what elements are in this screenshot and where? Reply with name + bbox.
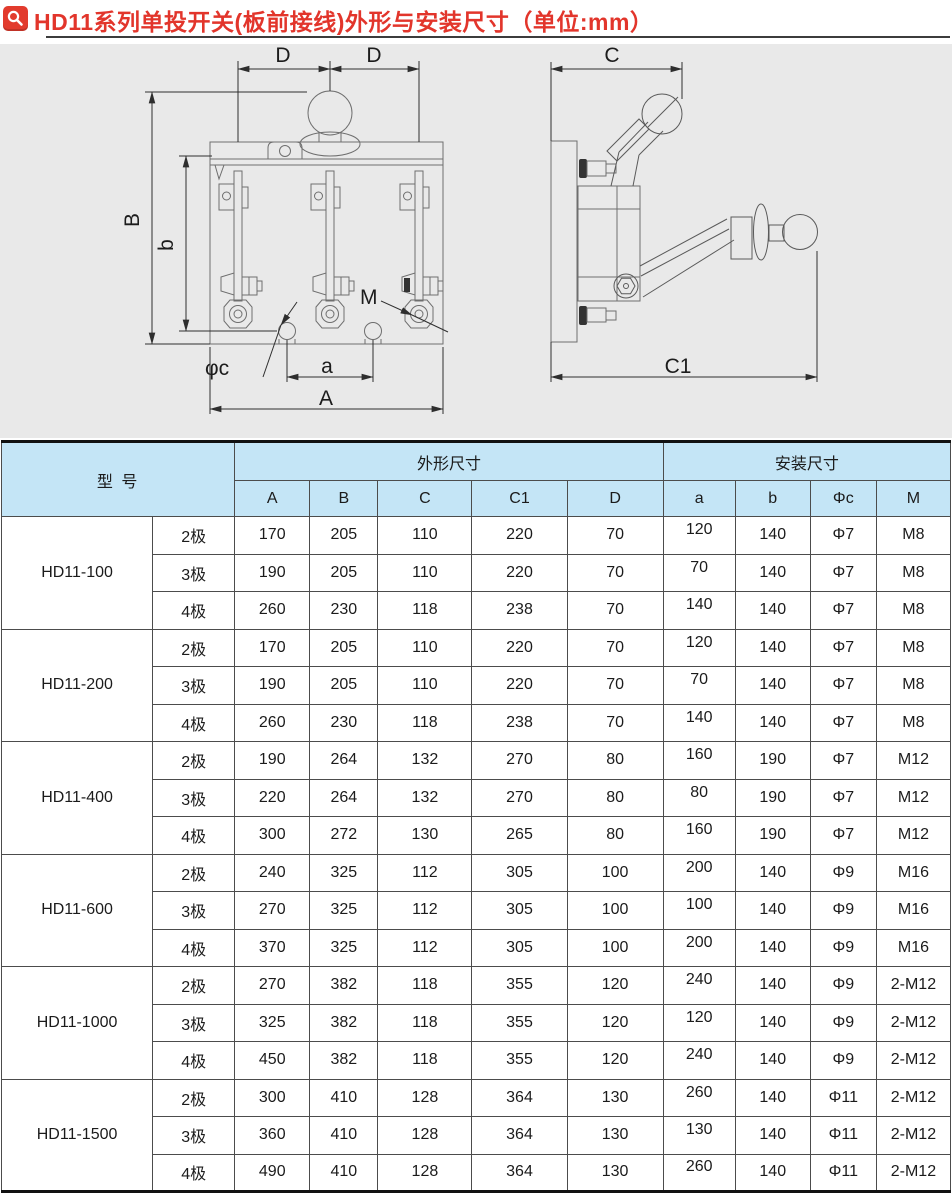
header-col-M: M xyxy=(876,481,950,517)
value-cell: 112 xyxy=(378,892,472,930)
table-row: HD11-1002极17020511022070120140Φ7M8 xyxy=(2,517,951,555)
value-cell: 70 xyxy=(663,667,735,705)
value-cell: 220 xyxy=(472,554,567,592)
value-cell: 170 xyxy=(235,517,310,555)
value-cell: Φ7 xyxy=(810,554,876,592)
value-cell: 120 xyxy=(663,517,735,555)
value-cell: Φ11 xyxy=(810,1117,876,1155)
header-shape-dims: 外形尺寸 xyxy=(235,442,663,481)
value-cell: 112 xyxy=(378,854,472,892)
value-cell: 70 xyxy=(567,592,663,630)
value-cell: 132 xyxy=(378,779,472,817)
value-cell: 200 xyxy=(663,854,735,892)
table-row: HD11-15002极300410128364130260140Φ112-M12 xyxy=(2,1079,951,1117)
pole-cell: 4极 xyxy=(153,1154,235,1192)
value-cell: 270 xyxy=(235,967,310,1005)
value-cell: 220 xyxy=(472,629,567,667)
value-cell: 140 xyxy=(735,704,810,742)
value-cell: Φ7 xyxy=(810,517,876,555)
value-cell: 410 xyxy=(310,1154,378,1192)
value-cell: Φ11 xyxy=(810,1079,876,1117)
value-cell: 270 xyxy=(472,742,567,780)
value-cell: 110 xyxy=(378,629,472,667)
header-col-a: a xyxy=(663,481,735,517)
value-cell: M12 xyxy=(876,779,950,817)
page-title: HD11系列单投开关(板前接线)外形与安装尺寸（单位:mm） xyxy=(34,3,653,37)
value-cell: 300 xyxy=(235,1079,310,1117)
pole-cell: 4极 xyxy=(153,592,235,630)
value-cell: M8 xyxy=(876,704,950,742)
spec-table-body: HD11-1002极17020511022070120140Φ7M83极1902… xyxy=(2,517,951,1192)
value-cell: M16 xyxy=(876,892,950,930)
value-cell: 140 xyxy=(735,1042,810,1080)
value-cell: 220 xyxy=(472,517,567,555)
value-cell: M12 xyxy=(876,817,950,855)
value-cell: 325 xyxy=(310,892,378,930)
value-cell: 120 xyxy=(663,629,735,667)
value-cell: 140 xyxy=(735,1079,810,1117)
value-cell: 140 xyxy=(735,517,810,555)
value-cell: 205 xyxy=(310,517,378,555)
value-cell: 120 xyxy=(567,1042,663,1080)
value-cell: 110 xyxy=(378,517,472,555)
value-cell: 140 xyxy=(735,1117,810,1155)
table-row: HD11-2002极17020511022070120140Φ7M8 xyxy=(2,629,951,667)
pole-cell: 2极 xyxy=(153,742,235,780)
value-cell: 450 xyxy=(235,1042,310,1080)
value-cell: 170 xyxy=(235,629,310,667)
dim-label-D-left: D xyxy=(275,44,290,67)
value-cell: 160 xyxy=(663,742,735,780)
header-col-C: C xyxy=(378,481,472,517)
value-cell: 360 xyxy=(235,1117,310,1155)
value-cell: 100 xyxy=(567,929,663,967)
value-cell: 70 xyxy=(567,554,663,592)
value-cell: 128 xyxy=(378,1079,472,1117)
value-cell: 205 xyxy=(310,629,378,667)
value-cell: 355 xyxy=(472,1042,567,1080)
value-cell: Φ7 xyxy=(810,629,876,667)
value-cell: 2-M12 xyxy=(876,967,950,1005)
pole-cell: 3极 xyxy=(153,1117,235,1155)
model-cell: HD11-1000 xyxy=(2,967,153,1080)
dim-label-A: A xyxy=(319,387,333,410)
value-cell: 260 xyxy=(663,1154,735,1192)
value-cell: 410 xyxy=(310,1117,378,1155)
value-cell: 80 xyxy=(567,779,663,817)
value-cell: 140 xyxy=(735,629,810,667)
value-cell: 100 xyxy=(567,854,663,892)
model-cell: HD11-400 xyxy=(2,742,153,855)
value-cell: M8 xyxy=(876,517,950,555)
value-cell: 70 xyxy=(567,629,663,667)
value-cell: Φ7 xyxy=(810,667,876,705)
spec-table: 型 号 外形尺寸 安装尺寸 A B C C1 D a b Φc M HD11-1… xyxy=(1,440,951,1193)
value-cell: 130 xyxy=(567,1117,663,1155)
pole-cell: 3极 xyxy=(153,1004,235,1042)
value-cell: 382 xyxy=(310,1004,378,1042)
value-cell: 205 xyxy=(310,667,378,705)
value-cell: Φ9 xyxy=(810,1004,876,1042)
value-cell: 70 xyxy=(567,667,663,705)
header-col-D: D xyxy=(567,481,663,517)
value-cell: 230 xyxy=(310,592,378,630)
value-cell: 110 xyxy=(378,667,472,705)
value-cell: 140 xyxy=(735,929,810,967)
pole-cell: 2极 xyxy=(153,854,235,892)
value-cell: 140 xyxy=(735,667,810,705)
value-cell: 270 xyxy=(235,892,310,930)
value-cell: 120 xyxy=(663,1004,735,1042)
value-cell: 325 xyxy=(310,929,378,967)
value-cell: 305 xyxy=(472,854,567,892)
value-cell: 80 xyxy=(663,779,735,817)
catalog-page: HD11系列单投开关(板前接线)外形与安装尺寸（单位:mm） xyxy=(0,0,952,1194)
value-cell: 382 xyxy=(310,967,378,1005)
value-cell: 230 xyxy=(310,704,378,742)
dimension-drawings: D D B b M φc a A xyxy=(0,44,952,438)
value-cell: 118 xyxy=(378,967,472,1005)
value-cell: 140 xyxy=(735,854,810,892)
value-cell: 70 xyxy=(567,517,663,555)
title-underline xyxy=(46,36,950,38)
pole-cell: 3极 xyxy=(153,779,235,817)
value-cell: M8 xyxy=(876,629,950,667)
dim-label-C1: C1 xyxy=(665,355,692,378)
value-cell: M16 xyxy=(876,929,950,967)
value-cell: 265 xyxy=(472,817,567,855)
value-cell: 70 xyxy=(663,554,735,592)
value-cell: 128 xyxy=(378,1154,472,1192)
value-cell: 118 xyxy=(378,704,472,742)
header-model: 型 号 xyxy=(2,442,235,517)
value-cell: Φ11 xyxy=(810,1154,876,1192)
value-cell: 130 xyxy=(663,1117,735,1155)
value-cell: Φ9 xyxy=(810,892,876,930)
value-cell: 140 xyxy=(735,1004,810,1042)
header-col-b: b xyxy=(735,481,810,517)
model-cell: HD11-100 xyxy=(2,517,153,630)
value-cell: 260 xyxy=(235,704,310,742)
value-cell: 120 xyxy=(567,967,663,1005)
pole-cell: 3极 xyxy=(153,554,235,592)
value-cell: 118 xyxy=(378,1004,472,1042)
value-cell: 160 xyxy=(663,817,735,855)
value-cell: 190 xyxy=(235,742,310,780)
value-cell: 2-M12 xyxy=(876,1079,950,1117)
side-view-drawing: C C1 xyxy=(551,44,818,382)
value-cell: 264 xyxy=(310,742,378,780)
value-cell: 110 xyxy=(378,554,472,592)
value-cell: 130 xyxy=(567,1154,663,1192)
value-cell: Φ9 xyxy=(810,1042,876,1080)
value-cell: M8 xyxy=(876,554,950,592)
model-cell: HD11-1500 xyxy=(2,1079,153,1192)
pole-cell: 4极 xyxy=(153,929,235,967)
value-cell: Φ7 xyxy=(810,817,876,855)
value-cell: M8 xyxy=(876,592,950,630)
value-cell: 305 xyxy=(472,929,567,967)
value-cell: Φ9 xyxy=(810,854,876,892)
pole-cell: 2极 xyxy=(153,629,235,667)
value-cell: 272 xyxy=(310,817,378,855)
value-cell: 355 xyxy=(472,1004,567,1042)
value-cell: 140 xyxy=(735,967,810,1005)
mounting-hole xyxy=(365,323,382,340)
value-cell: 140 xyxy=(735,592,810,630)
value-cell: 80 xyxy=(567,742,663,780)
value-cell: 190 xyxy=(735,779,810,817)
value-cell: 190 xyxy=(235,667,310,705)
value-cell: 118 xyxy=(378,1042,472,1080)
value-cell: Φ7 xyxy=(810,704,876,742)
value-cell: 300 xyxy=(235,817,310,855)
pole-assembly xyxy=(219,171,443,328)
value-cell: 305 xyxy=(472,892,567,930)
value-cell: 260 xyxy=(235,592,310,630)
value-cell: 140 xyxy=(663,592,735,630)
pole-cell: 4极 xyxy=(153,1042,235,1080)
value-cell: 220 xyxy=(472,667,567,705)
value-cell: 70 xyxy=(567,704,663,742)
pole-cell: 3极 xyxy=(153,667,235,705)
value-cell: 130 xyxy=(378,817,472,855)
value-cell: 240 xyxy=(235,854,310,892)
title-bar: HD11系列单投开关(板前接线)外形与安装尺寸（单位:mm） xyxy=(0,0,952,44)
value-cell: M16 xyxy=(876,854,950,892)
header-col-phi-c: Φc xyxy=(810,481,876,517)
value-cell: 2-M12 xyxy=(876,1004,950,1042)
pole-cell: 3极 xyxy=(153,892,235,930)
value-cell: 240 xyxy=(663,1042,735,1080)
value-cell: 100 xyxy=(663,892,735,930)
value-cell: 118 xyxy=(378,592,472,630)
header-col-A: A xyxy=(235,481,310,517)
dim-label-a: a xyxy=(321,355,333,378)
header-col-C1: C1 xyxy=(472,481,567,517)
value-cell: 220 xyxy=(235,779,310,817)
pole-cell: 2极 xyxy=(153,1079,235,1117)
table-row: HD11-10002极270382118355120240140Φ92-M12 xyxy=(2,967,951,1005)
value-cell: 120 xyxy=(567,1004,663,1042)
value-cell: 128 xyxy=(378,1117,472,1155)
header-col-B: B xyxy=(310,481,378,517)
magnifier-icon xyxy=(3,6,28,31)
value-cell: 205 xyxy=(310,554,378,592)
value-cell: 364 xyxy=(472,1117,567,1155)
value-cell: 190 xyxy=(235,554,310,592)
value-cell: M8 xyxy=(876,667,950,705)
dim-label-D-right: D xyxy=(366,44,381,67)
value-cell: 240 xyxy=(663,967,735,1005)
value-cell: 140 xyxy=(663,704,735,742)
value-cell: Φ7 xyxy=(810,779,876,817)
value-cell: 382 xyxy=(310,1042,378,1080)
value-cell: Φ7 xyxy=(810,592,876,630)
pole-cell: 2极 xyxy=(153,517,235,555)
value-cell: 140 xyxy=(735,892,810,930)
front-view-drawing: D D B b M φc a A xyxy=(121,44,448,414)
value-cell: 364 xyxy=(472,1079,567,1117)
value-cell: 260 xyxy=(663,1079,735,1117)
value-cell: Φ9 xyxy=(810,929,876,967)
table-row: HD11-4002极19026413227080160190Φ7M12 xyxy=(2,742,951,780)
table-row: HD11-6002极240325112305100200140Φ9M16 xyxy=(2,854,951,892)
value-cell: 132 xyxy=(378,742,472,780)
value-cell: 112 xyxy=(378,929,472,967)
value-cell: 325 xyxy=(235,1004,310,1042)
value-cell: 355 xyxy=(472,967,567,1005)
model-cell: HD11-200 xyxy=(2,629,153,742)
value-cell: 2-M12 xyxy=(876,1117,950,1155)
dim-label-B: B xyxy=(121,213,144,227)
value-cell: 490 xyxy=(235,1154,310,1192)
value-cell: 140 xyxy=(735,554,810,592)
dim-label-M: M xyxy=(360,286,378,309)
pole-cell: 4极 xyxy=(153,817,235,855)
value-cell: 238 xyxy=(472,592,567,630)
value-cell: 80 xyxy=(567,817,663,855)
header-install-dims: 安装尺寸 xyxy=(663,442,950,481)
value-cell: M12 xyxy=(876,742,950,780)
value-cell: 190 xyxy=(735,817,810,855)
value-cell: 270 xyxy=(472,779,567,817)
value-cell: Φ7 xyxy=(810,742,876,780)
dim-label-b: b xyxy=(155,239,178,251)
pole-cell: 2极 xyxy=(153,967,235,1005)
value-cell: 200 xyxy=(663,929,735,967)
value-cell: 100 xyxy=(567,892,663,930)
value-cell: 364 xyxy=(472,1154,567,1192)
value-cell: 2-M12 xyxy=(876,1154,950,1192)
dim-label-C: C xyxy=(604,44,619,67)
dim-label-phi-c: φc xyxy=(205,357,229,380)
pole-cell: 4极 xyxy=(153,704,235,742)
value-cell: 190 xyxy=(735,742,810,780)
value-cell: 130 xyxy=(567,1079,663,1117)
model-cell: HD11-600 xyxy=(2,854,153,967)
value-cell: 325 xyxy=(310,854,378,892)
value-cell: 410 xyxy=(310,1079,378,1117)
value-cell: 140 xyxy=(735,1154,810,1192)
value-cell: 2-M12 xyxy=(876,1042,950,1080)
value-cell: 370 xyxy=(235,929,310,967)
value-cell: 264 xyxy=(310,779,378,817)
value-cell: Φ9 xyxy=(810,967,876,1005)
value-cell: 238 xyxy=(472,704,567,742)
